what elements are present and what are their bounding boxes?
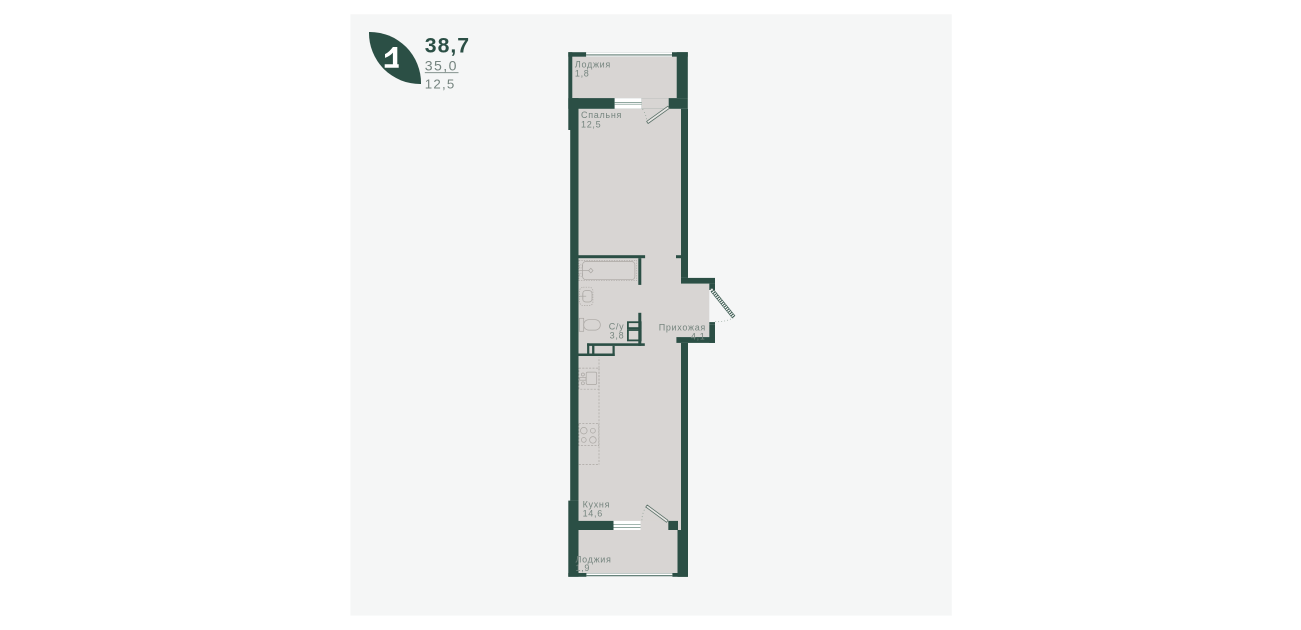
svg-text:12,5: 12,5 [581, 120, 601, 130]
svg-text:4,1: 4,1 [691, 331, 706, 341]
svg-text:14,6: 14,6 [583, 509, 603, 519]
svg-text:12,5: 12,5 [425, 77, 456, 92]
svg-text:38,7: 38,7 [425, 34, 470, 57]
svg-text:1,9: 1,9 [576, 563, 591, 573]
svg-text:3,8: 3,8 [610, 331, 625, 341]
svg-text:35,0: 35,0 [425, 58, 458, 74]
svg-text:Спальня: Спальня [581, 110, 622, 120]
svg-text:1,8: 1,8 [575, 68, 590, 78]
